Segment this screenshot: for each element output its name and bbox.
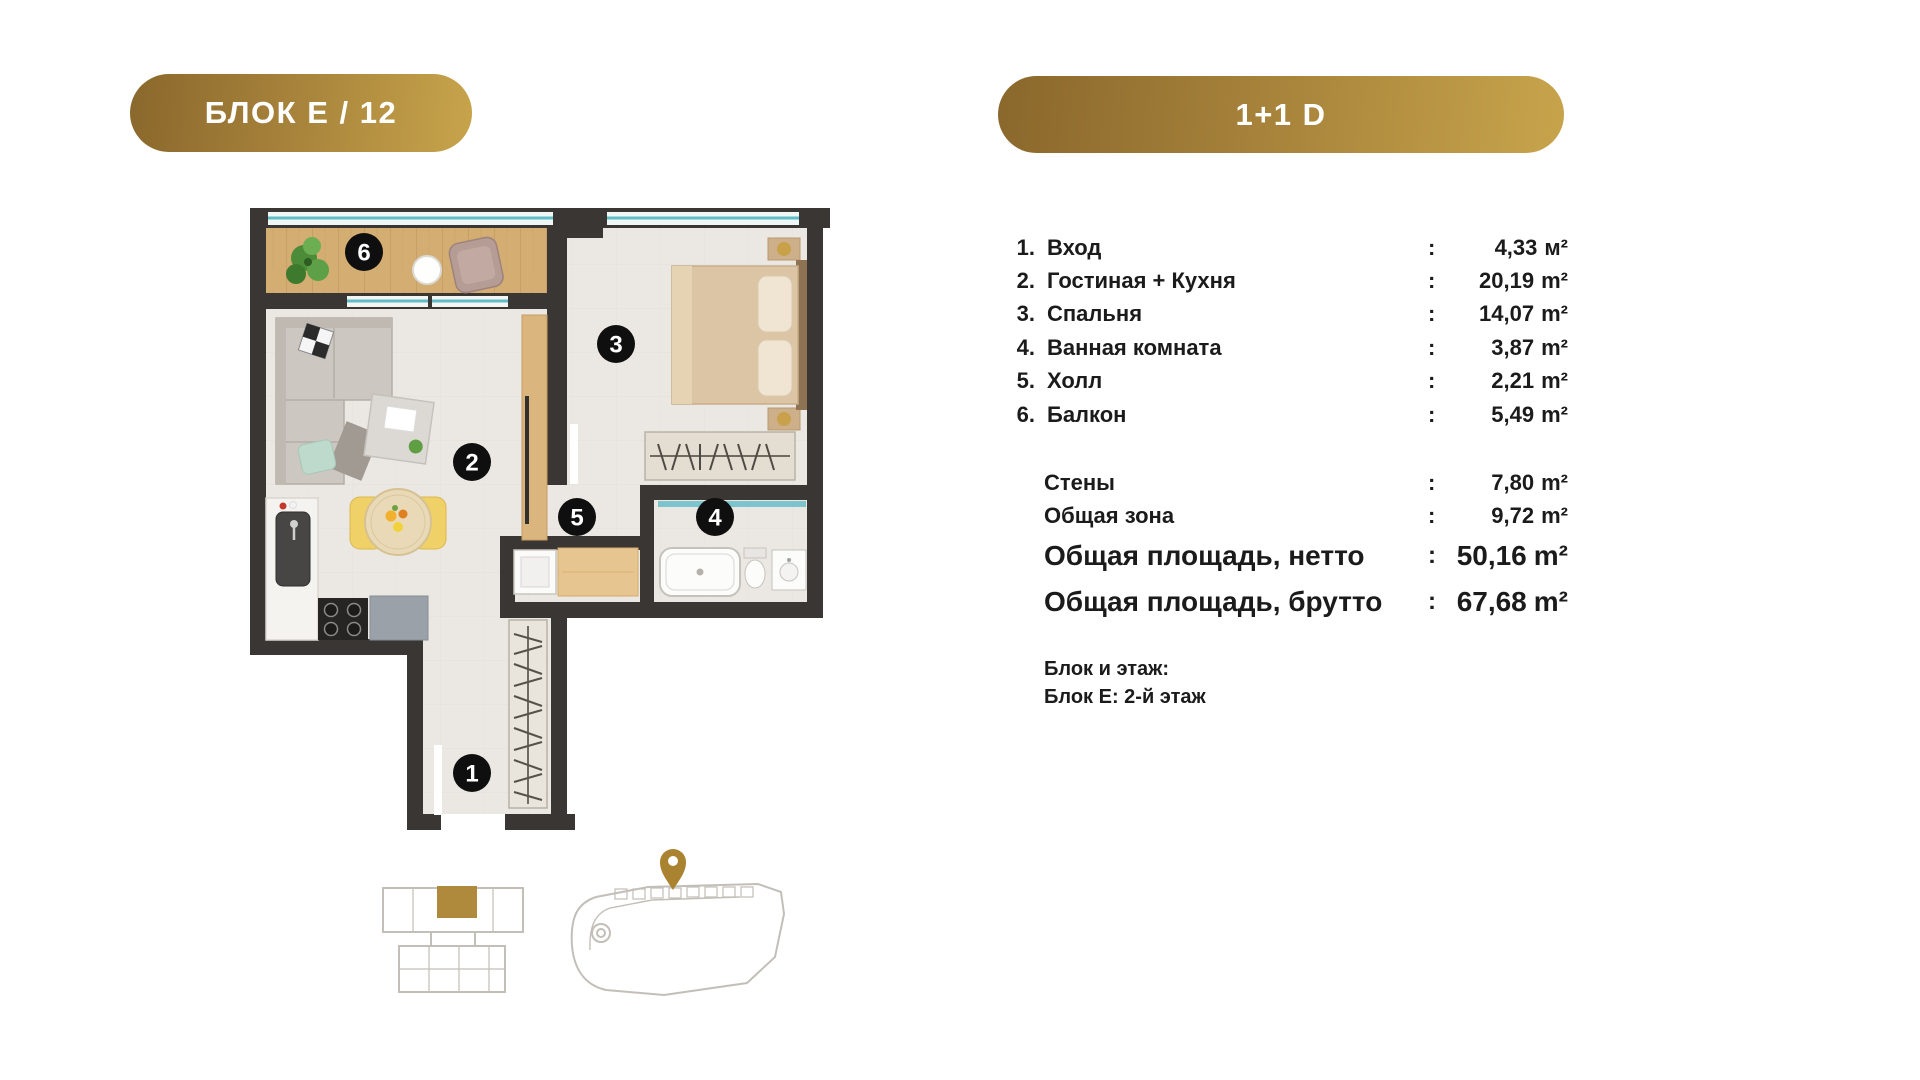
summary-area: 7,80m² xyxy=(1491,470,1568,496)
block-floor-info: Блок и этаж: Блок Е: 2-й этаж xyxy=(1044,655,1568,711)
marker-bath-num: 4 xyxy=(708,505,722,532)
separator: : xyxy=(1428,301,1435,327)
bathtub xyxy=(660,548,740,596)
summary-area: 9,72m² xyxy=(1491,503,1568,529)
room-row: 1. Вход : 4,33м² xyxy=(988,231,1568,264)
total-area-unit: m² xyxy=(1534,540,1568,571)
bedroom-wardrobe xyxy=(645,432,795,480)
area-table: 1. Вход : 4,33м² 2. Гостиная + Кухня : 2… xyxy=(988,231,1568,711)
lamp-bottom xyxy=(777,412,791,426)
total-row-brutto: Общая площадь, брутто : 67,68m² xyxy=(988,579,1568,625)
toilet xyxy=(744,548,766,588)
total-area: 67,68m² xyxy=(1457,586,1568,618)
totals-list: Общая площадь, нетто : 50,16m² Общая пло… xyxy=(988,533,1568,625)
unit-type-badge: 1+1 D xyxy=(998,76,1564,153)
marker-bedroom-num: 3 xyxy=(609,332,622,359)
room-area-value: 20,19 xyxy=(1479,268,1534,293)
total-area-value: 67,68 xyxy=(1457,586,1527,617)
marker-balcony-num: 6 xyxy=(357,240,370,267)
room-index: 4. xyxy=(988,335,1035,361)
room-area-unit: m² xyxy=(1541,368,1568,393)
room-row: 6. Балкон : 5,49m² xyxy=(988,398,1568,431)
location-pin-icon xyxy=(660,849,686,890)
total-label: Общая площадь, брутто xyxy=(1044,586,1382,618)
room-area-value: 14,07 xyxy=(1479,301,1534,326)
room-label: Спальня xyxy=(1047,301,1142,327)
summary-area-unit: m² xyxy=(1541,470,1568,495)
summary-label: Стены xyxy=(1044,470,1115,496)
dining-set xyxy=(350,489,446,555)
room-index: 3. xyxy=(988,301,1035,327)
total-label: Общая площадь, нетто xyxy=(1044,540,1365,572)
marker-bath: 4 xyxy=(696,498,734,536)
marker-balcony: 6 xyxy=(345,233,383,271)
summary-row: Стены : 7,80m² xyxy=(988,466,1568,499)
separator: : xyxy=(1428,235,1435,261)
room-area-value: 5,49 xyxy=(1491,402,1534,427)
armchair xyxy=(448,236,505,295)
total-area-unit: m² xyxy=(1534,586,1568,617)
separator: : xyxy=(1428,402,1435,428)
washing-machine xyxy=(514,550,556,594)
room-label: Вход xyxy=(1047,235,1101,261)
room-index: 1. xyxy=(988,235,1035,261)
room-area-unit: m² xyxy=(1541,335,1568,360)
bed-fold xyxy=(672,266,692,404)
room-area-unit: m² xyxy=(1541,301,1568,326)
corridor-door-leaf xyxy=(434,745,442,815)
marker-hall-num: 5 xyxy=(570,505,583,532)
room-label: Балкон xyxy=(1047,402,1126,428)
marker-entry: 1 xyxy=(453,754,491,792)
block-floor-detail: Блок Е: 2-й этаж xyxy=(1044,683,1568,711)
coffee-table xyxy=(364,394,434,464)
block-badge: БЛОК Е / 12 xyxy=(130,74,472,152)
entrance-opening xyxy=(441,814,505,830)
side-table xyxy=(413,256,441,284)
lamp-top xyxy=(777,242,791,256)
room-area: 14,07m² xyxy=(1479,301,1568,327)
room-label: Гостиная + Кухня xyxy=(1047,268,1236,294)
highlighted-unit xyxy=(437,886,477,918)
summary-list: Стены : 7,80m² Общая зона : 9,72m² xyxy=(988,466,1568,533)
room-row: 4. Ванная комната : 3,87m² xyxy=(988,331,1568,364)
room-index: 5. xyxy=(988,368,1035,394)
hall-furniture xyxy=(514,548,638,596)
room-area: 4,33м² xyxy=(1495,235,1568,261)
room-area: 20,19m² xyxy=(1479,268,1568,294)
separator: : xyxy=(1428,503,1435,529)
summary-label: Общая зона xyxy=(1044,503,1174,529)
room-row: 2. Гостиная + Кухня : 20,19m² xyxy=(988,264,1568,297)
total-area: 50,16m² xyxy=(1457,540,1568,572)
summary-area-value: 7,80 xyxy=(1491,470,1534,495)
separator: : xyxy=(1428,268,1435,294)
room-list: 1. Вход : 4,33м² 2. Гостиная + Кухня : 2… xyxy=(988,231,1568,431)
block-badge-label: БЛОК Е / 12 xyxy=(205,95,397,131)
room-area-value: 2,21 xyxy=(1491,368,1534,393)
room-label: Ванная комната xyxy=(1047,335,1222,361)
kitchen-island xyxy=(370,596,428,640)
room-label: Холл xyxy=(1047,368,1102,394)
room-row: 3. Спальня : 14,07m² xyxy=(988,298,1568,331)
room-area-value: 4,33 xyxy=(1495,235,1538,260)
locator-diagrams xyxy=(370,840,800,1005)
bedroom-door-leaf xyxy=(570,424,578,484)
room-area-unit: m² xyxy=(1541,268,1568,293)
room-index: 6. xyxy=(988,402,1035,428)
total-row-netto: Общая площадь, нетто : 50,16m² xyxy=(988,533,1568,579)
pillow-1 xyxy=(758,276,792,332)
marker-hall: 5 xyxy=(558,498,596,536)
room-area: 3,87m² xyxy=(1491,335,1568,361)
room-index: 2. xyxy=(988,268,1035,294)
marker-bedroom: 3 xyxy=(597,325,635,363)
room-area: 2,21m² xyxy=(1491,368,1568,394)
room-area-value: 3,87 xyxy=(1491,335,1534,360)
block-floor-title: Блок и этаж: xyxy=(1044,655,1568,683)
room-row: 5. Холл : 2,21m² xyxy=(988,365,1568,398)
tv-cabinet xyxy=(522,315,547,540)
site-plan-diagram xyxy=(572,884,784,995)
bathroom-tile-accent xyxy=(658,501,806,507)
marker-entry-num: 1 xyxy=(465,761,478,788)
separator: : xyxy=(1428,588,1436,616)
marker-living: 2 xyxy=(453,443,491,481)
separator: : xyxy=(1428,542,1436,570)
pillow-2 xyxy=(758,340,792,396)
kitchen-counter xyxy=(266,498,318,640)
floor-plan: 6 3 2 5 4 1 xyxy=(240,200,840,840)
room-area-unit: м² xyxy=(1544,235,1568,260)
separator: : xyxy=(1428,335,1435,361)
corridor-wardrobe xyxy=(509,620,547,808)
marker-living-num: 2 xyxy=(465,450,478,477)
room-area: 5,49m² xyxy=(1491,402,1568,428)
bathroom-furniture xyxy=(660,548,806,596)
separator: : xyxy=(1428,470,1435,496)
mint-pillow xyxy=(297,439,336,475)
summary-area-unit: m² xyxy=(1541,503,1568,528)
stove xyxy=(318,598,368,640)
bathroom-sink xyxy=(772,550,806,590)
summary-row: Общая зона : 9,72m² xyxy=(988,500,1568,533)
total-area-value: 50,16 xyxy=(1457,540,1527,571)
separator: : xyxy=(1428,368,1435,394)
room-area-unit: m² xyxy=(1541,402,1568,427)
summary-area-value: 9,72 xyxy=(1491,503,1534,528)
unit-type-badge-label: 1+1 D xyxy=(1235,97,1326,133)
